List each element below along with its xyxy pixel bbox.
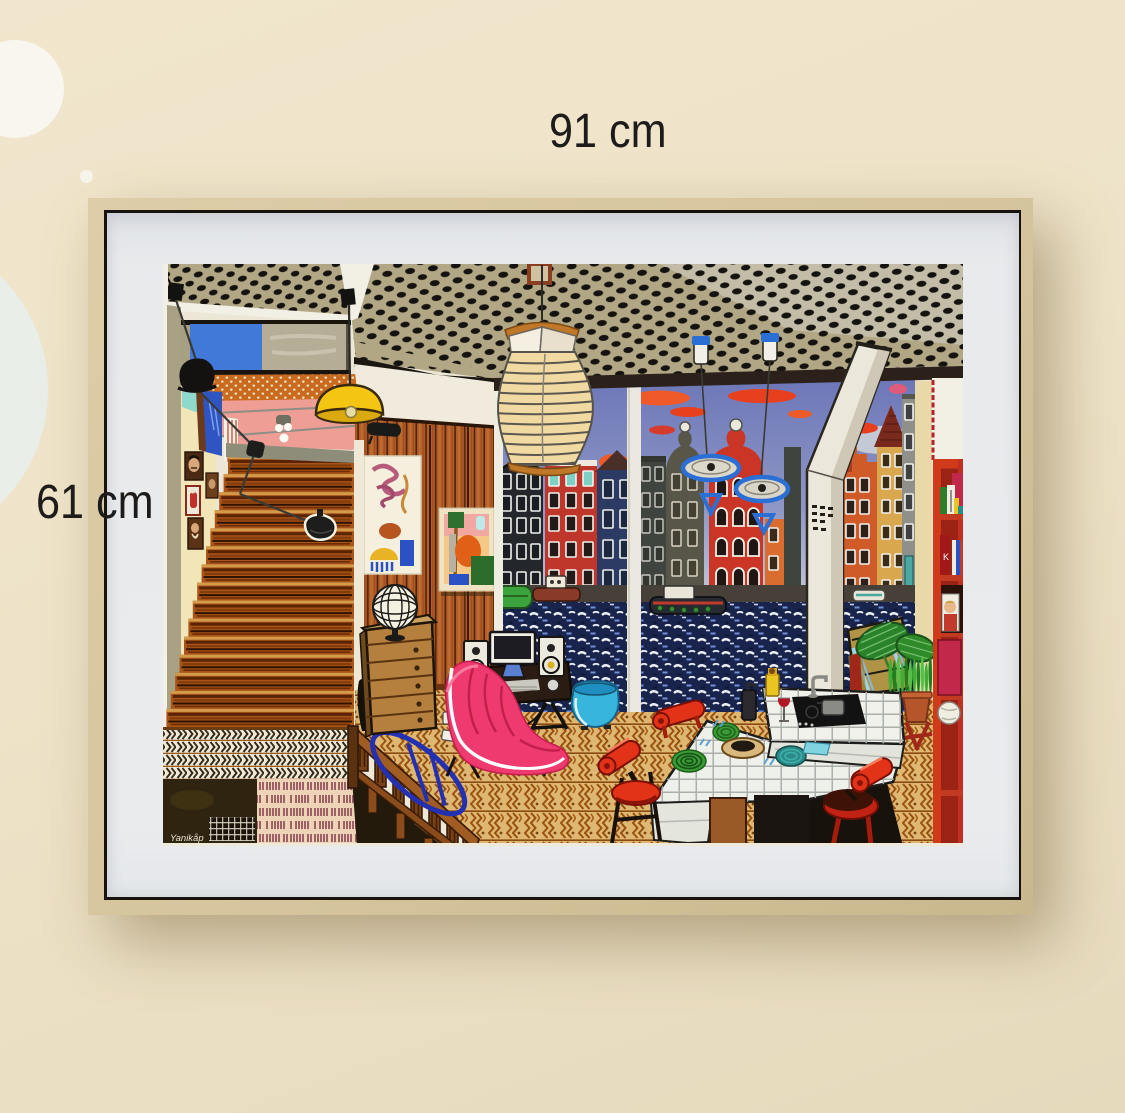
svg-text:Yanikåp: Yanikåp — [170, 833, 204, 844]
svg-text:K: K — [943, 552, 949, 562]
